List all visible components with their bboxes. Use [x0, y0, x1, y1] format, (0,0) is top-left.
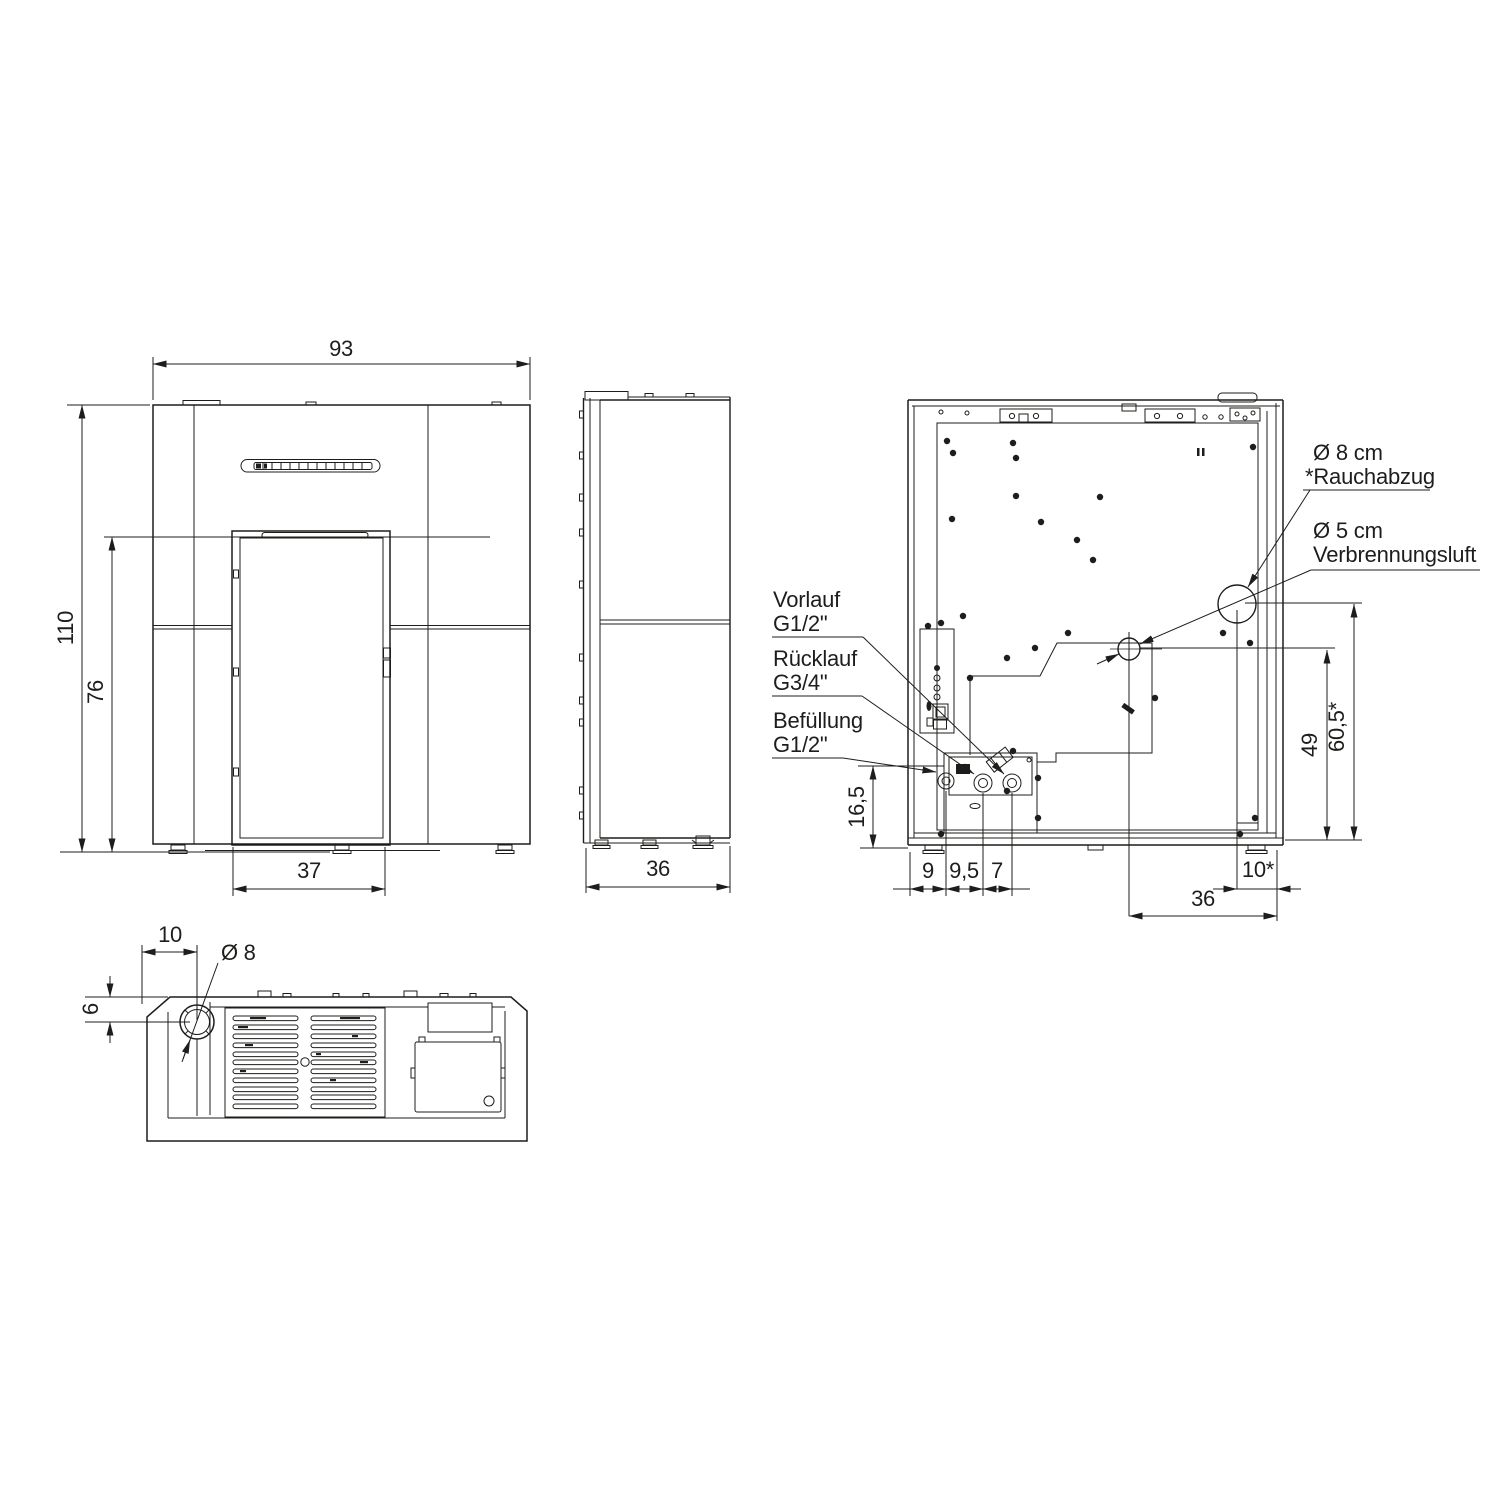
front-door-top-label: 76 — [83, 680, 108, 704]
side-depth-label: 36 — [646, 856, 670, 881]
rear-connection-assembly — [938, 747, 1037, 833]
rear-9-label: 9 — [922, 858, 934, 883]
pellet-stove-dimension-drawing: 93 110 76 37 36 — [0, 0, 1500, 1500]
befuellung-fitting — [938, 773, 954, 789]
front-door-width-label: 37 — [297, 858, 321, 883]
verbrennungsluft-diameter-label: Ø 5 cm — [1313, 518, 1383, 543]
indicator-led — [934, 665, 940, 671]
front-outline — [153, 405, 530, 844]
bottom-pipe-diameter-label: Ø 8 — [221, 940, 256, 965]
rear-inner-panel — [937, 423, 1258, 830]
ruecklauf-leader — [862, 696, 974, 774]
side-view — [580, 392, 731, 894]
bottom-hopper-box — [428, 1003, 492, 1032]
ruecklauf-fitting — [974, 774, 992, 792]
rear-16-5-label: 16,5 — [844, 786, 869, 828]
rear-view — [908, 393, 1283, 854]
front-vent-slot — [241, 460, 380, 473]
bottom-pipe-offset-label: 10 — [158, 922, 182, 947]
rear-screws — [925, 438, 1258, 837]
ruecklauf-label: Rücklauf — [773, 646, 858, 671]
rear-60-5-label: 60,5* — [1324, 701, 1349, 752]
befuellung-leader — [843, 758, 936, 772]
ruecklauf-size-label: G3/4" — [773, 670, 828, 695]
rauchabzug-label: *Rauchabzug — [1305, 464, 1435, 489]
befuellung-size-label: G1/2" — [773, 732, 828, 757]
front-width-label: 93 — [329, 336, 353, 361]
rear-49-label: 49 — [1297, 733, 1322, 757]
vorlauf-size-label: G1/2" — [773, 611, 828, 636]
rear-step-outline — [970, 643, 1152, 762]
rauchabzug-leader — [1248, 490, 1310, 587]
verbrennungsluft-label: Verbrennungsluft — [1313, 542, 1476, 567]
technical-drawing-canvas: 93 110 76 37 36 — [0, 0, 1500, 1500]
rear-top-hardware — [939, 393, 1260, 456]
front-height-label: 110 — [53, 611, 78, 645]
bottom-maintenance-door — [411, 1037, 505, 1112]
vorlauf-leader — [863, 637, 1004, 774]
rear-36-label: 36 — [1191, 886, 1215, 911]
rauchabzug-diameter-label: Ø 8 cm — [1313, 440, 1383, 465]
vorlauf-label: Vorlauf — [773, 587, 841, 612]
rear-7-label: 7 — [991, 858, 1003, 883]
vorlauf-fitting — [1003, 774, 1021, 792]
bottom-view — [85, 945, 527, 1141]
front-view — [153, 401, 530, 854]
bottom-pipe-depth-label: 6 — [78, 1003, 103, 1015]
rear-9-5-label: 9,5 — [949, 858, 979, 883]
befuellung-label: Befüllung — [773, 708, 863, 733]
rear-feet — [923, 845, 1267, 854]
side-top-cap — [585, 392, 628, 401]
rear-10-label: 10* — [1242, 857, 1275, 882]
front-dimensions — [60, 357, 530, 896]
bottom-vent-grid — [225, 1008, 385, 1117]
front-door — [232, 531, 391, 845]
